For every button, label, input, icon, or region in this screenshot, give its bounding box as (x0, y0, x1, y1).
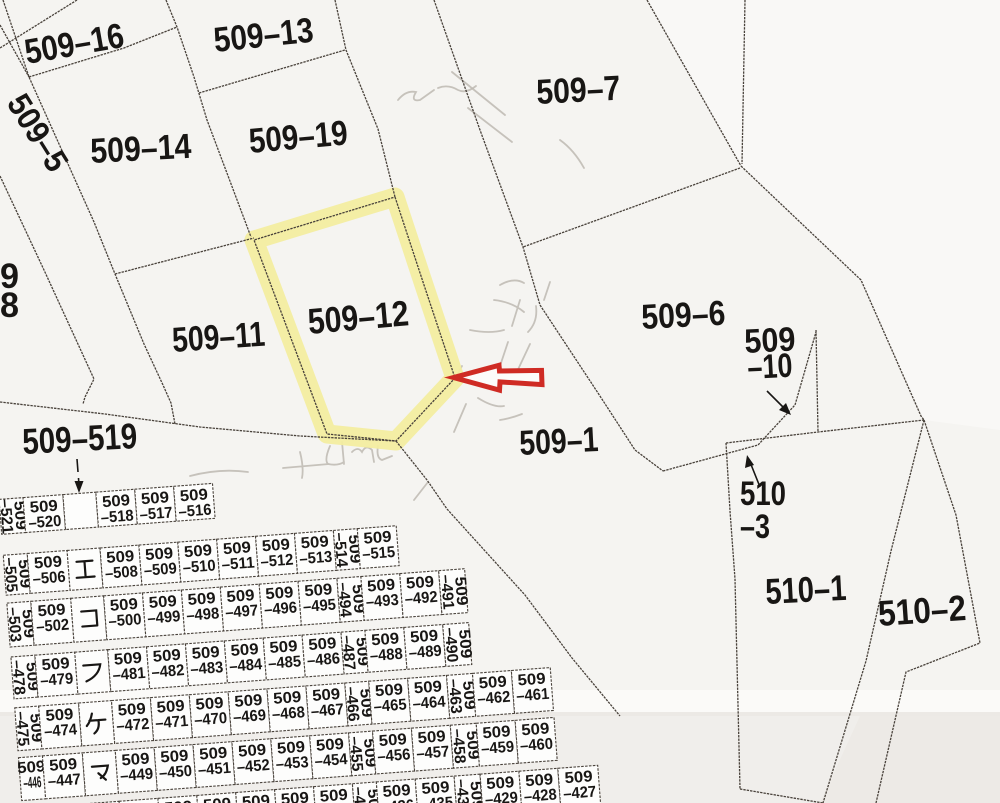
svg-text:–493: –493 (365, 592, 399, 611)
svg-text:–515: –515 (362, 544, 396, 563)
svg-text:–456: –456 (377, 746, 411, 765)
svg-text:–452: –452 (236, 757, 270, 776)
svg-text:–468: –468 (271, 704, 305, 723)
svg-text:–455: –455 (346, 736, 366, 772)
svg-text:–469: –469 (232, 707, 266, 726)
svg-text:–10: –10 (746, 347, 793, 387)
svg-text:–494: –494 (334, 582, 354, 618)
svg-text:8: 8 (0, 286, 19, 325)
svg-text:–505: –505 (0, 557, 20, 593)
svg-text:–497: –497 (225, 602, 259, 621)
svg-text:–450: –450 (158, 763, 192, 782)
svg-text:–495: –495 (302, 596, 336, 615)
svg-text:509: 509 (241, 792, 270, 803)
svg-text:–3: –3 (740, 508, 770, 546)
svg-text:–487: –487 (338, 635, 358, 671)
svg-text:–517: –517 (139, 504, 173, 523)
svg-text:–516: –516 (178, 502, 212, 521)
svg-text:509: 509 (319, 787, 348, 803)
svg-text:–512: –512 (260, 552, 294, 571)
svg-text:–513: –513 (299, 549, 333, 568)
svg-text:–464: –464 (412, 694, 446, 713)
svg-text:–430: –430 (452, 778, 472, 803)
svg-text:–454: –454 (314, 751, 348, 770)
svg-text:–508: –508 (104, 563, 138, 582)
svg-text:–458: –458 (449, 728, 469, 764)
svg-text:509: 509 (280, 790, 309, 803)
svg-text:–474: –474 (44, 721, 78, 740)
svg-text:–472: –472 (116, 716, 150, 735)
svg-text:–500: –500 (108, 611, 142, 630)
svg-text:–451: –451 (197, 760, 231, 779)
svg-text:–447: –447 (47, 771, 81, 790)
svg-text:–483: –483 (190, 659, 224, 678)
svg-text:–427: –427 (563, 783, 597, 802)
svg-text:–481: –481 (112, 665, 146, 684)
svg-text:–503: –503 (4, 607, 24, 643)
svg-text:–435: –435 (420, 794, 454, 803)
svg-text:–520: –520 (28, 513, 62, 532)
svg-text:–479: –479 (40, 670, 74, 689)
svg-text:–446: –446 (23, 774, 42, 792)
svg-text:–521: –521 (0, 498, 16, 534)
svg-text:–457: –457 (416, 743, 450, 762)
svg-text:–470: –470 (194, 710, 228, 729)
svg-text:–511: –511 (221, 554, 255, 573)
svg-text:–502: –502 (36, 617, 70, 636)
svg-text:–485: –485 (268, 653, 302, 672)
svg-text:510–2: 510–2 (877, 587, 968, 634)
svg-text:–462: –462 (477, 689, 511, 708)
svg-text:–453: –453 (275, 754, 309, 773)
svg-text:509–11: 509–11 (171, 315, 266, 360)
svg-text:509: 509 (202, 795, 231, 803)
svg-text:–488: –488 (369, 646, 403, 665)
svg-text:–489: –489 (408, 643, 442, 662)
svg-text:–484: –484 (229, 656, 263, 675)
svg-text:–498: –498 (186, 605, 220, 624)
svg-text:–491: –491 (437, 574, 457, 610)
svg-text:–492: –492 (404, 589, 438, 608)
svg-text:–459: –459 (481, 739, 515, 758)
svg-text:–510: –510 (182, 557, 216, 576)
svg-text:509–7: 509–7 (535, 69, 621, 112)
svg-text:–471: –471 (155, 713, 189, 732)
svg-text:509–6: 509–6 (640, 294, 726, 337)
svg-text:–499: –499 (147, 608, 181, 627)
svg-text:–463: –463 (445, 678, 465, 714)
svg-text:–478: –478 (8, 659, 28, 695)
svg-text:–449: –449 (120, 766, 154, 785)
svg-text:510–1: 510–1 (764, 567, 847, 612)
svg-text:–509: –509 (143, 560, 177, 579)
svg-text:–428: –428 (523, 786, 557, 803)
svg-text:509–1: 509–1 (518, 420, 599, 463)
svg-text:–429: –429 (484, 789, 518, 803)
svg-text:–475: –475 (12, 711, 32, 747)
svg-text:509–12: 509–12 (306, 292, 410, 342)
svg-text:–461: –461 (516, 686, 550, 705)
svg-text:–482: –482 (151, 662, 185, 681)
svg-text:–466: –466 (342, 686, 362, 722)
svg-text:–437: –437 (350, 786, 370, 803)
svg-text:–514: –514 (331, 532, 351, 568)
svg-text:–467: –467 (310, 701, 344, 720)
svg-text:–496: –496 (264, 599, 298, 618)
svg-text:–486: –486 (306, 650, 340, 669)
svg-text:–465: –465 (373, 696, 407, 715)
svg-text:509–14: 509–14 (89, 127, 192, 171)
svg-text:–506: –506 (32, 569, 66, 588)
svg-text:–518: –518 (100, 507, 134, 526)
svg-text:–460: –460 (519, 736, 553, 755)
svg-text:–490: –490 (441, 627, 461, 663)
svg-text:509–519: 509–519 (21, 415, 138, 462)
